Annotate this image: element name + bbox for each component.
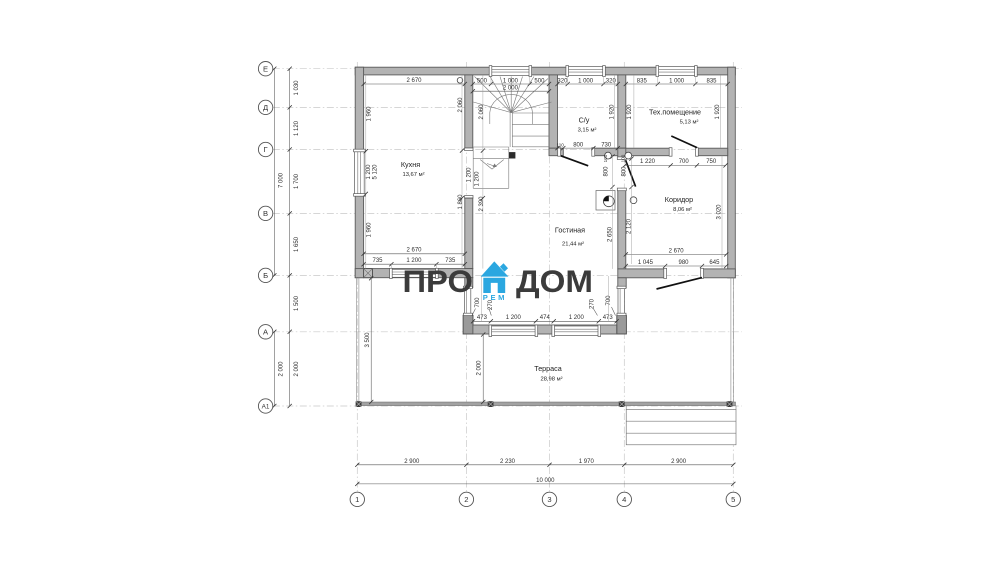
svg-text:2 900: 2 900 — [404, 459, 420, 465]
svg-text:3,15 м²: 3,15 м² — [578, 128, 597, 134]
svg-text:473: 473 — [477, 315, 488, 321]
svg-text:5,13 м²: 5,13 м² — [680, 120, 699, 126]
svg-text:1: 1 — [355, 495, 359, 504]
svg-text:2 390: 2 390 — [479, 196, 485, 212]
svg-text:980: 980 — [678, 260, 689, 266]
svg-text:1 220: 1 220 — [640, 159, 656, 165]
svg-text:ПРО: ПРО — [403, 263, 474, 299]
svg-text:2 000: 2 000 — [294, 361, 300, 377]
svg-text:835: 835 — [706, 78, 717, 84]
svg-text:1 000: 1 000 — [503, 78, 519, 84]
svg-text:13,67 м²: 13,67 м² — [402, 172, 424, 178]
svg-text:735: 735 — [372, 258, 383, 264]
svg-text:Д: Д — [263, 103, 268, 112]
svg-text:Б: Б — [263, 271, 268, 280]
svg-text:5: 5 — [731, 495, 735, 504]
svg-text:473: 473 — [603, 315, 614, 321]
svg-text:500: 500 — [534, 78, 545, 84]
svg-text:700: 700 — [679, 159, 690, 165]
svg-text:500: 500 — [477, 78, 488, 84]
svg-text:1 200: 1 200 — [506, 315, 522, 321]
svg-text:5 120: 5 120 — [372, 164, 378, 180]
svg-text:1 120: 1 120 — [294, 120, 300, 136]
svg-text:474: 474 — [540, 315, 551, 321]
svg-text:2 000: 2 000 — [503, 86, 519, 92]
svg-text:Тех.помещение: Тех.помещение — [649, 108, 701, 117]
svg-text:1 200: 1 200 — [366, 164, 372, 180]
svg-text:А1: А1 — [262, 404, 270, 411]
svg-text:1 200: 1 200 — [475, 171, 481, 187]
svg-text:100: 100 — [603, 154, 608, 162]
svg-text:835: 835 — [637, 78, 648, 84]
svg-text:100: 100 — [621, 154, 626, 162]
svg-text:3 500: 3 500 — [365, 332, 371, 348]
svg-text:7 000: 7 000 — [279, 172, 285, 188]
svg-text:1 045: 1 045 — [638, 260, 654, 266]
svg-text:10 000: 10 000 — [536, 478, 555, 484]
svg-text:1 500: 1 500 — [294, 295, 300, 311]
svg-text:1 030: 1 030 — [294, 80, 300, 96]
svg-text:С/у: С/у — [579, 116, 590, 125]
svg-text:2 230: 2 230 — [500, 459, 516, 465]
svg-text:2 000: 2 000 — [476, 360, 482, 376]
svg-text:2 670: 2 670 — [669, 248, 685, 254]
svg-text:110: 110 — [557, 142, 565, 147]
svg-text:2 670: 2 670 — [406, 78, 422, 84]
svg-text:1 920: 1 920 — [627, 104, 633, 120]
svg-text:800: 800 — [621, 166, 627, 177]
svg-text:2 060: 2 060 — [479, 104, 485, 120]
svg-text:2 900: 2 900 — [671, 459, 687, 465]
svg-text:1 000: 1 000 — [669, 78, 685, 84]
svg-text:2: 2 — [464, 495, 468, 504]
svg-text:1 960: 1 960 — [367, 222, 373, 238]
svg-text:700: 700 — [606, 295, 612, 306]
svg-text:3: 3 — [547, 495, 551, 504]
svg-text:2 000: 2 000 — [279, 361, 285, 377]
svg-text:320: 320 — [557, 78, 568, 84]
svg-text:1 000: 1 000 — [578, 78, 594, 84]
svg-text:270: 270 — [590, 298, 596, 309]
svg-text:Терраса: Терраса — [534, 364, 562, 373]
svg-text:РЕМ: РЕМ — [483, 293, 507, 302]
svg-text:1 650: 1 650 — [294, 236, 300, 252]
svg-text:645: 645 — [709, 260, 720, 266]
svg-text:2 060: 2 060 — [458, 97, 464, 113]
svg-text:730: 730 — [601, 142, 612, 148]
svg-text:320: 320 — [606, 78, 617, 84]
svg-text:800: 800 — [573, 142, 584, 148]
svg-text:ДОМ: ДОМ — [516, 263, 593, 299]
svg-text:Коридор: Коридор — [665, 195, 693, 204]
svg-text:Кухня: Кухня — [401, 160, 420, 169]
svg-text:21,44 м²: 21,44 м² — [562, 242, 584, 248]
svg-text:2 670: 2 670 — [406, 248, 422, 254]
svg-text:800: 800 — [604, 166, 610, 177]
svg-text:1 960: 1 960 — [367, 106, 373, 122]
svg-text:750: 750 — [706, 159, 717, 165]
svg-text:1 200: 1 200 — [569, 315, 585, 321]
svg-text:700: 700 — [475, 297, 481, 308]
svg-text:1 700: 1 700 — [294, 173, 300, 189]
svg-text:Гостиная: Гостиная — [555, 226, 585, 235]
svg-text:1 970: 1 970 — [579, 459, 595, 465]
svg-text:1 200: 1 200 — [466, 167, 472, 183]
svg-text:Г: Г — [264, 145, 268, 154]
svg-text:28,98 м²: 28,98 м² — [540, 377, 562, 383]
svg-text:1 860: 1 860 — [458, 194, 464, 210]
svg-text:8,06 м²: 8,06 м² — [673, 207, 692, 213]
svg-text:В: В — [263, 209, 268, 218]
svg-text:4: 4 — [622, 495, 626, 504]
svg-text:Е: Е — [263, 64, 268, 73]
